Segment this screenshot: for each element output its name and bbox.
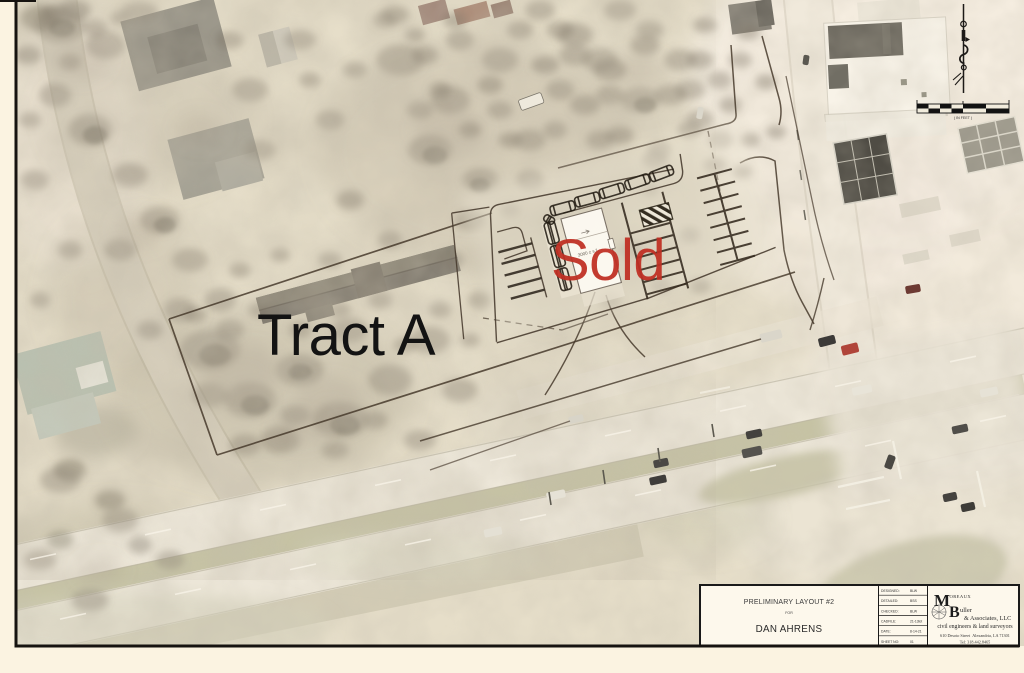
svg-text:BLW: BLW	[910, 609, 918, 613]
svg-text:CHECKED:: CHECKED:	[881, 609, 899, 613]
svg-text:Tract A: Tract A	[257, 303, 436, 368]
svg-text:DATE:: DATE:	[881, 630, 891, 634]
svg-text:BLW: BLW	[910, 589, 918, 593]
svg-text:SHEET NO:: SHEET NO:	[881, 640, 899, 644]
svg-text:Sold: Sold	[551, 228, 665, 293]
svg-text:( IN FEET ): ( IN FEET )	[954, 116, 972, 120]
svg-text:21-13lot: 21-13lot	[910, 620, 922, 624]
svg-text:BSS: BSS	[910, 599, 918, 603]
svg-text:& Associates, LLC: & Associates, LLC	[964, 615, 1011, 622]
svg-text:DETAILED:: DETAILED:	[881, 599, 898, 603]
svg-text:B: B	[949, 604, 960, 621]
svg-text:DAN AHRENS: DAN AHRENS	[756, 624, 823, 635]
svg-text:Tel: 318.442.8465: Tel: 318.442.8465	[960, 640, 991, 645]
svg-text:01: 01	[910, 640, 914, 644]
svg-text:uller: uller	[960, 607, 973, 614]
svg-text:DESIGNED:: DESIGNED:	[881, 589, 900, 593]
svg-text:8-14-21: 8-14-21	[910, 630, 922, 634]
svg-text:PRELIMINARY LAYOUT #2: PRELIMINARY LAYOUT #2	[744, 599, 834, 606]
svg-text:FOR: FOR	[785, 611, 793, 615]
svg-text:civil engineers & land surveyo: civil engineers & land surveyors	[937, 624, 1013, 630]
svg-text:M: M	[934, 591, 950, 610]
svg-text:CADFILE:: CADFILE:	[881, 620, 896, 624]
svg-text:OREAUX: OREAUX	[950, 594, 972, 599]
